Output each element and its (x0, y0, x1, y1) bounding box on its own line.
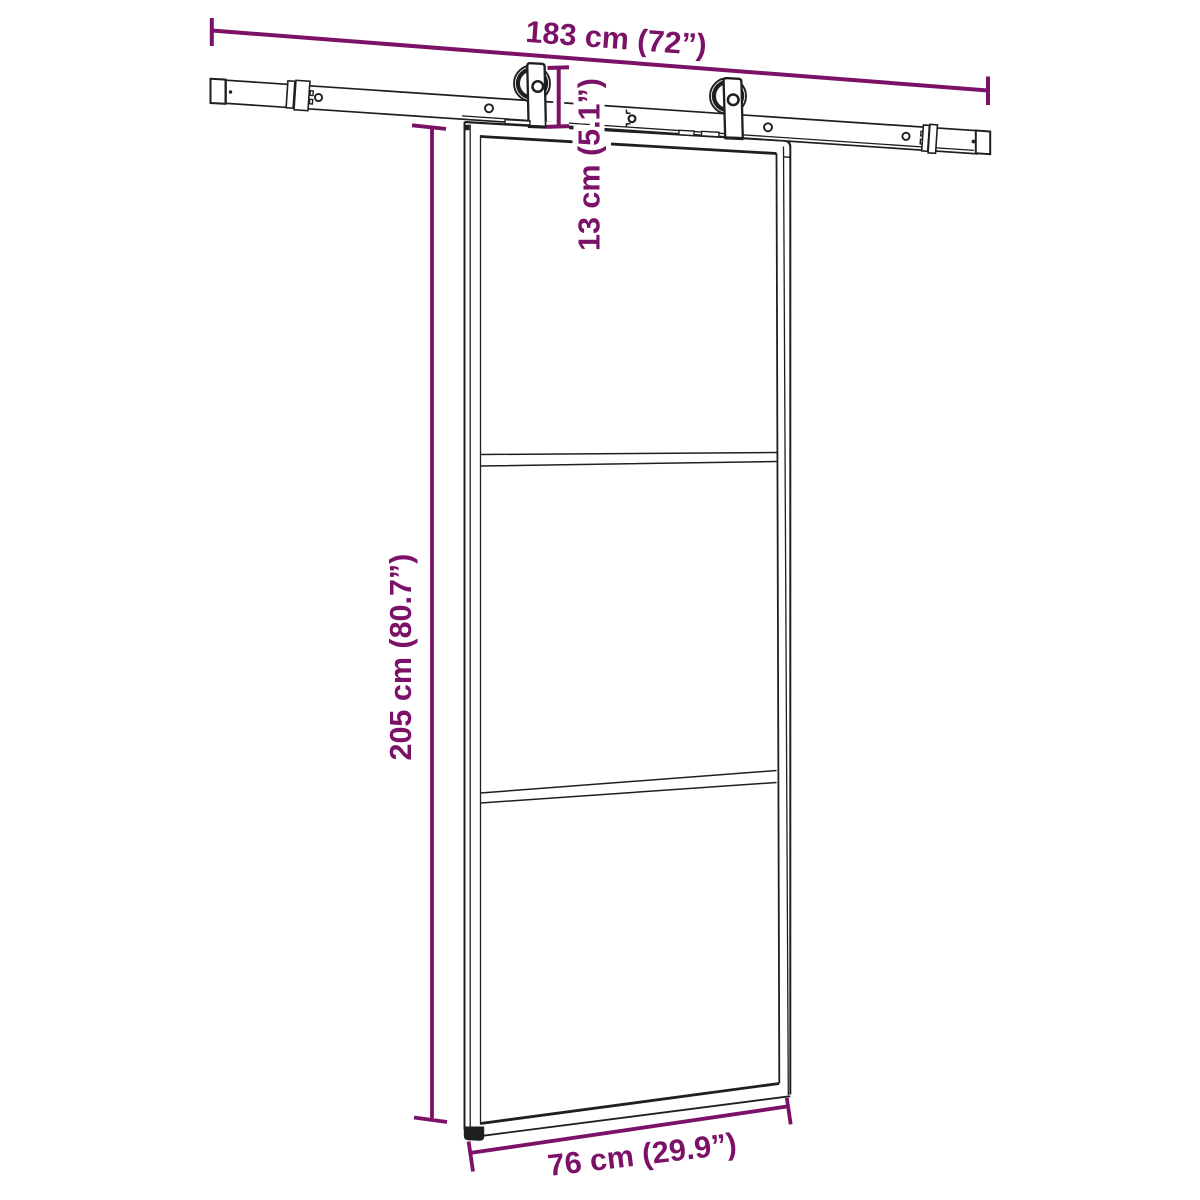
svg-text:13 cm (5.1”): 13 cm (5.1”) (573, 78, 607, 251)
svg-text:205 cm (80.7”): 205 cm (80.7”) (384, 554, 418, 761)
